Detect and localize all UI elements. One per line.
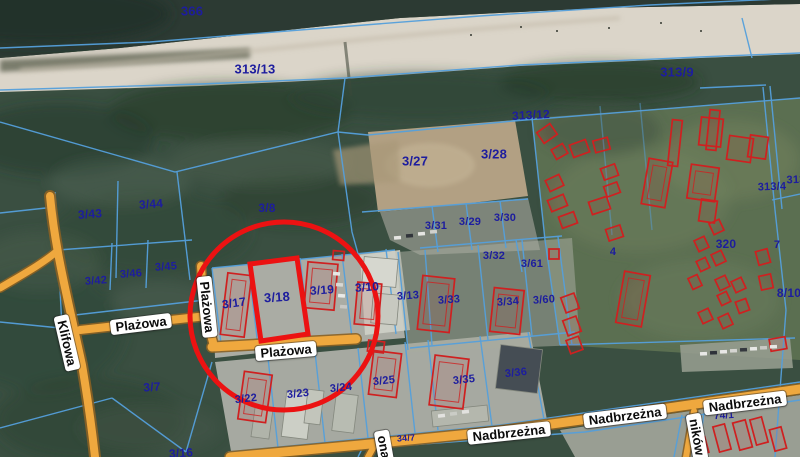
car [760,346,767,350]
car [730,349,737,353]
building-outline [687,164,719,202]
building-outline [748,135,769,159]
building-outline [769,337,787,352]
car [406,234,413,238]
map-canvas [0,0,800,457]
car [700,352,707,356]
car [394,236,401,240]
car [336,283,343,287]
car [720,350,727,354]
car [418,232,425,236]
car [740,348,747,352]
building-outline [699,199,718,223]
car [770,345,777,349]
car [338,294,345,298]
building-outline [759,274,774,290]
car [462,410,469,414]
building-outline [429,355,469,409]
car [340,305,347,309]
aerial-cadastral-map[interactable]: 366313/13313/9313/123/273/283/83/433/443… [0,0,800,457]
car [430,230,437,234]
car [750,347,757,351]
car [333,272,340,276]
building-outline [549,249,559,259]
terrain-layer [0,0,800,457]
car [450,412,457,416]
building-outline [490,288,524,335]
building-outline [304,262,338,310]
rooftop [332,393,358,433]
building-outline [333,251,345,261]
building-outline [417,275,454,332]
building-outline [755,249,770,266]
car [710,351,717,355]
car [438,414,445,418]
building-outline [593,137,611,152]
rooftop [495,345,542,394]
building-outline [238,371,272,422]
building-outline [368,350,401,397]
